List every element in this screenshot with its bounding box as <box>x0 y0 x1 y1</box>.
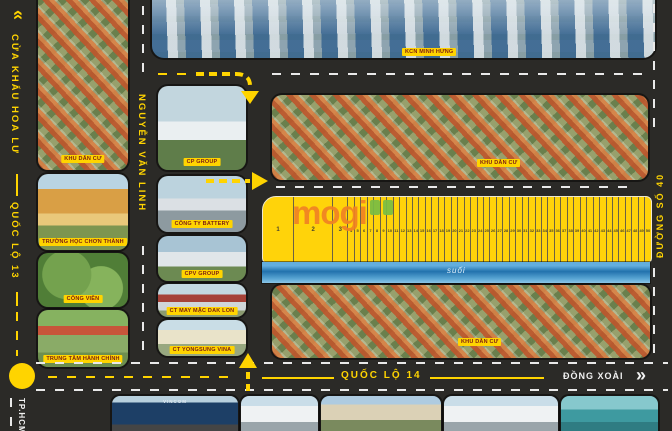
road-label-highway13: QUỐC LỘ 13 <box>9 202 20 286</box>
plot-1: 1 <box>263 197 294 263</box>
stream-label: suối <box>447 266 466 275</box>
stream-band: suối <box>262 262 650 283</box>
photo-residential-left: KHU DÂN CƯ <box>38 0 128 170</box>
road-dash <box>16 312 18 356</box>
watermark: mogi <box>292 197 393 228</box>
caption-yongsung-company: CT YONGSUNG VINA <box>170 346 235 354</box>
caption-cp-group: CP GROUP <box>184 158 221 166</box>
road-line <box>16 292 18 306</box>
photo-battery-company: CÔNG TY BATTERY <box>158 176 246 232</box>
photo-school: TRƯỜNG HỌC CHƠN THÀNH <box>38 174 128 250</box>
roundabout-icon <box>9 363 35 389</box>
road-line <box>262 377 334 379</box>
road-label-street40: ĐƯỜNG SỐ 40 <box>655 146 665 258</box>
road-label-highway14: QUỐC LỘ 14 <box>341 370 422 381</box>
vincom-sign: VINCOM <box>163 399 187 404</box>
road-dash <box>48 376 230 378</box>
caption-cpv-group: CPV GROUP <box>182 270 223 278</box>
photo-yongsung-company: CT YONGSUNG VINA <box>158 320 246 356</box>
photo-modern-house <box>241 396 318 431</box>
watermark-block-icon <box>383 200 393 215</box>
photo-industrial-zone: KCN MINH HƯNG <box>152 0 655 58</box>
road-line <box>430 377 544 379</box>
road-dash <box>272 73 644 75</box>
road-dash <box>36 362 668 364</box>
road-dash <box>653 268 655 354</box>
road-label-border-gate: CỬA KHẨU HOA LƯ <box>9 34 20 170</box>
location-map: » CỬA KHẨU HOA LƯ QUỐC LỘ 13 KHU DÂN CƯ … <box>0 0 672 431</box>
road-dash <box>142 246 144 352</box>
chevron-right-icon: » <box>636 366 646 384</box>
caption-battery-company: CÔNG TY BATTERY <box>172 220 233 228</box>
watermark-text: mogi <box>292 197 367 228</box>
photo-classic-villa <box>321 396 441 431</box>
road-dash <box>10 398 12 431</box>
road-label-nguyen-van-linh: NGUYỄN VĂN LINH <box>136 94 147 236</box>
bottom-photo-strip: VINCOM <box>112 396 658 431</box>
caption-residential-left: KHU DÂN CƯ <box>61 155 104 163</box>
photo-cpv-group: CPV GROUP <box>158 236 246 281</box>
arrow-head-right-icon <box>252 172 268 190</box>
photo-admin-center: TRUNG TÂM HÀNH CHÍNH <box>38 310 128 367</box>
road-dash <box>142 6 144 82</box>
photo-villa-2 <box>444 396 558 431</box>
destination-label-tphcm: TP.HCM <box>17 398 26 431</box>
chevron-up-icon: » <box>8 10 26 20</box>
photo-vincom: VINCOM <box>112 396 238 431</box>
photo-residential-top: KHU DÂN CƯ <box>272 95 648 180</box>
photo-cp-group: CP GROUP <box>158 86 246 170</box>
caption-residential-bottom: KHU DÂN CƯ <box>458 338 501 346</box>
road-dash <box>36 389 668 391</box>
photo-residential-bottom: KHU DÂN CƯ <box>272 285 650 358</box>
caption-school: TRƯỜNG HỌC CHƠN THÀNH <box>39 238 127 246</box>
photo-aerial-project <box>561 396 658 431</box>
road-dash <box>276 186 636 188</box>
photo-garment-company: CT MAY MẶC DAK LON <box>158 284 246 317</box>
caption-garment-company: CT MAY MẶC DAK LON <box>167 307 238 315</box>
road-dash <box>158 73 198 75</box>
road-dash <box>653 4 655 134</box>
watermark-block-icon <box>370 200 380 215</box>
caption-park: CÔNG VIÊN <box>64 295 103 303</box>
caption-industrial-zone: KCN MINH HƯNG <box>402 48 456 56</box>
arrow-head-up-icon <box>239 353 257 368</box>
destination-label-dong-xoai: ĐỒNG XOÀI <box>563 371 624 381</box>
caption-residential-top: KHU DÂN CƯ <box>477 159 520 167</box>
photo-park: CÔNG VIÊN <box>38 253 128 307</box>
road-line <box>16 174 18 196</box>
plot-50: 50 <box>645 197 650 263</box>
